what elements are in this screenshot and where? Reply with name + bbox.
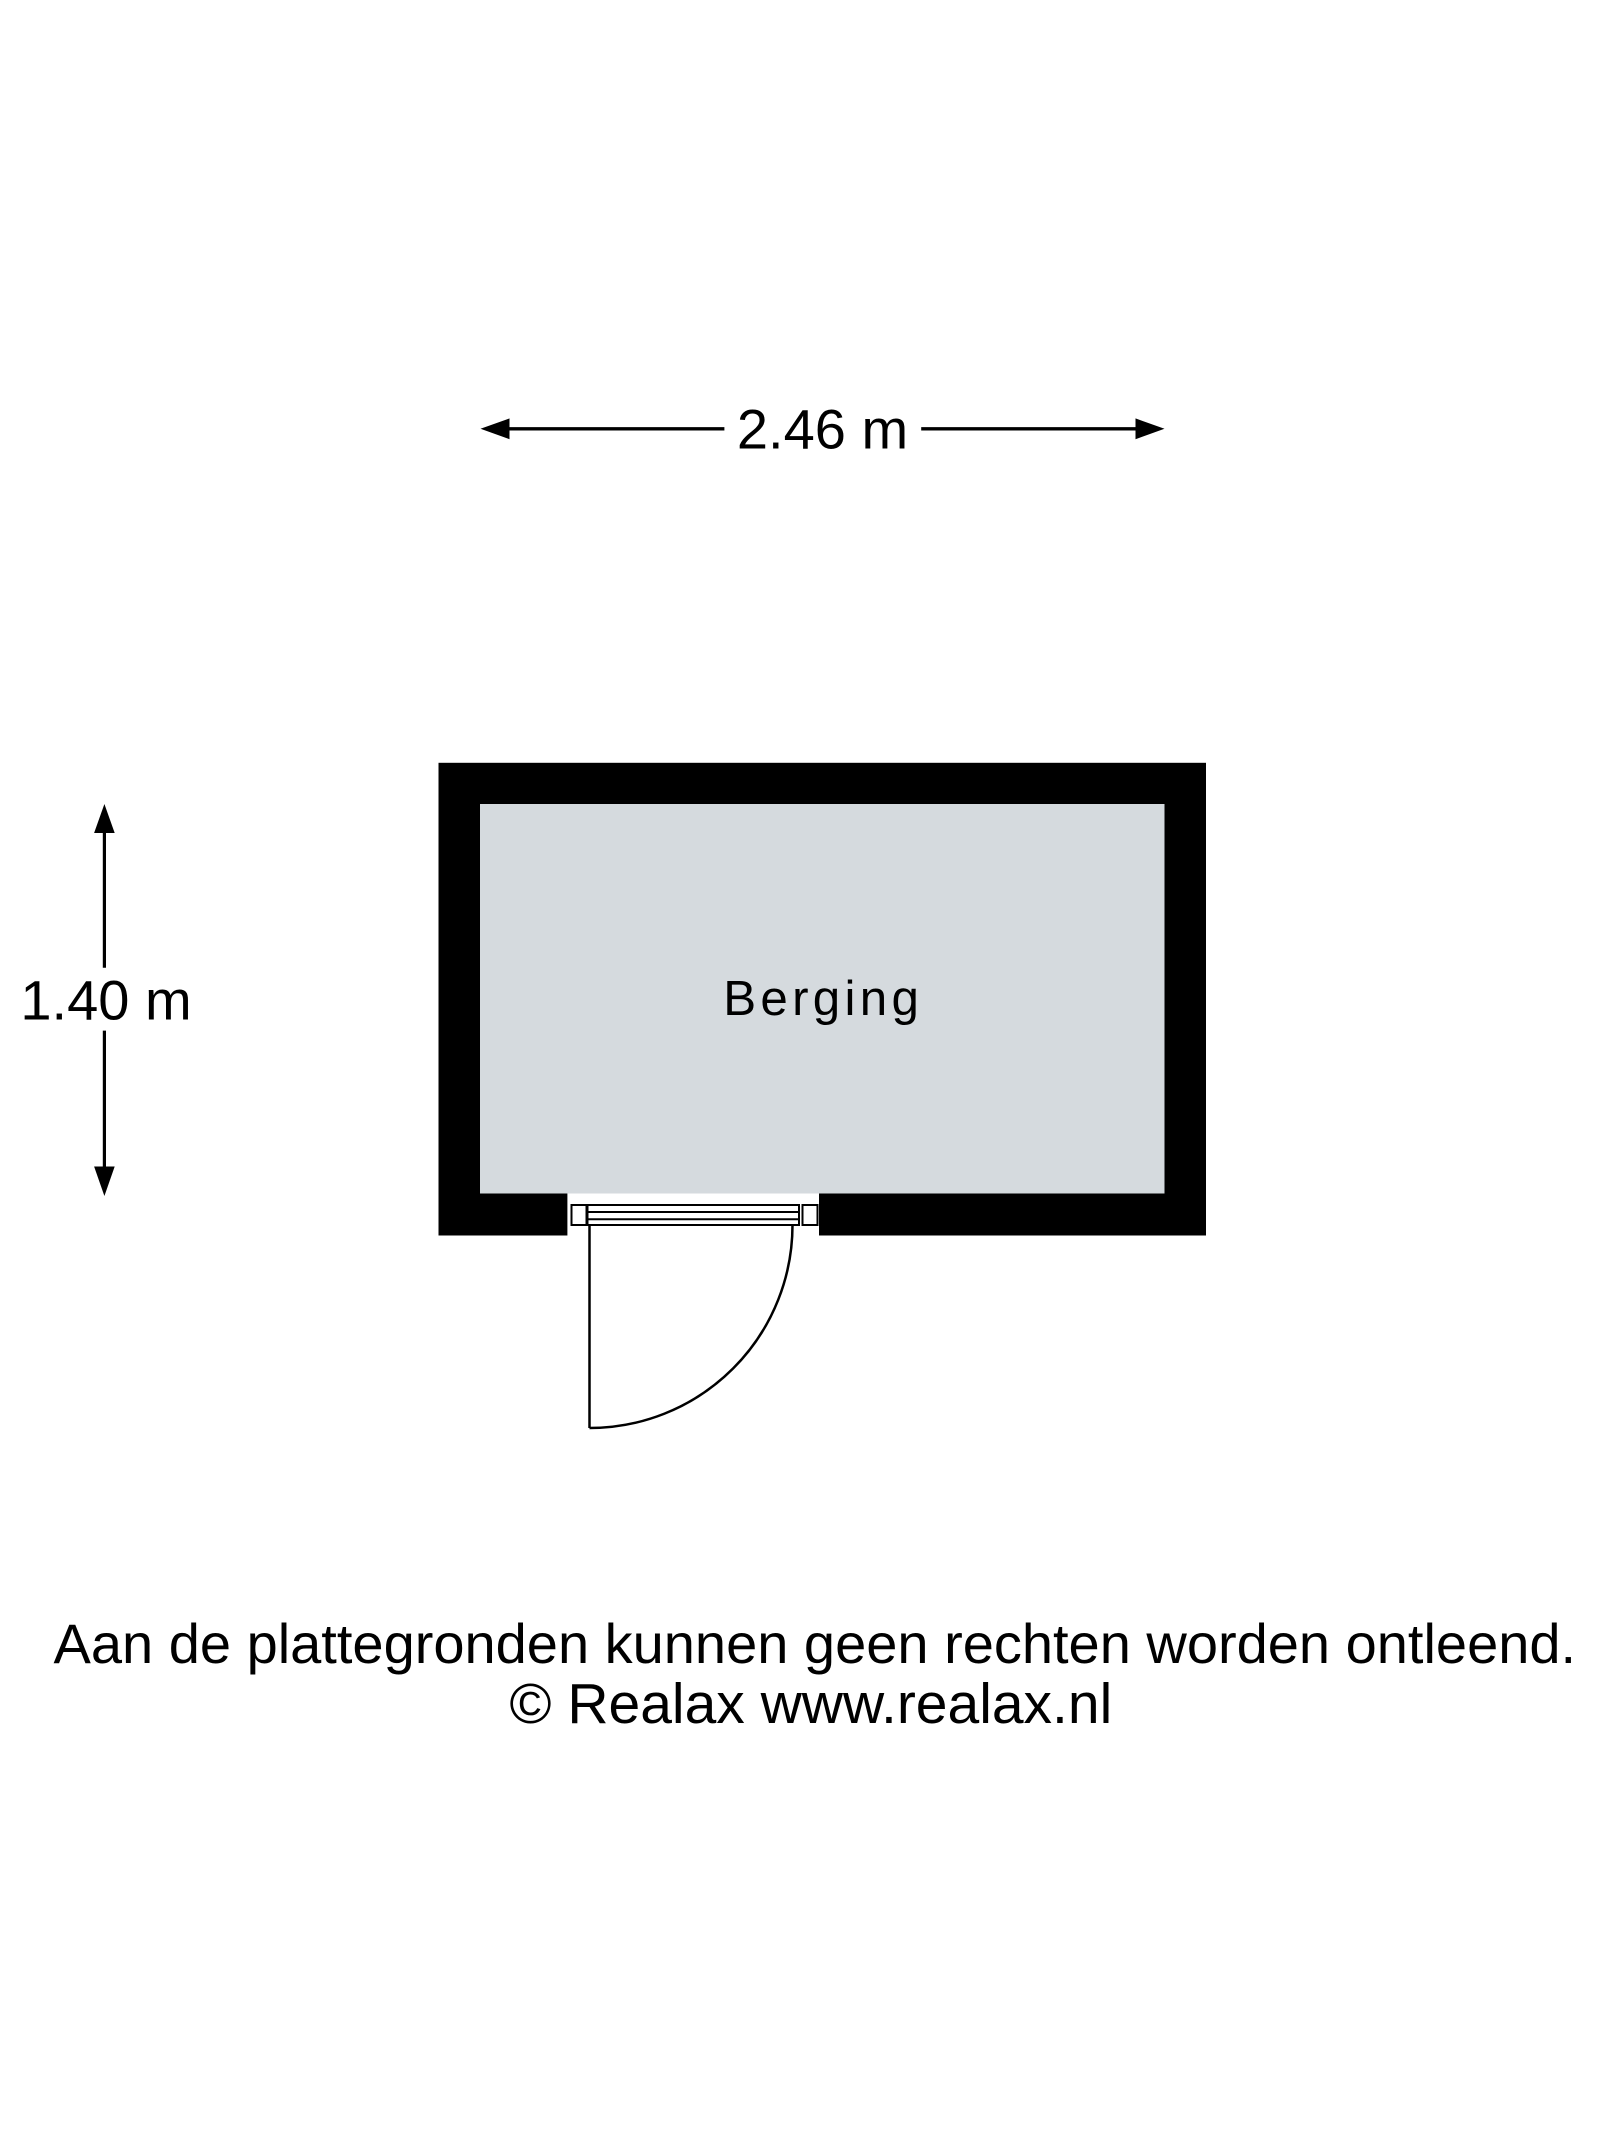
svg-text:1.40 m: 1.40 m bbox=[20, 968, 191, 1031]
svg-text:© Realax www.realax.nl: © Realax www.realax.nl bbox=[510, 1672, 1113, 1736]
svg-text:Berging: Berging bbox=[723, 971, 923, 1026]
svg-text:2.46 m: 2.46 m bbox=[737, 397, 908, 460]
svg-text:Aan de plattegronden kunnen ge: Aan de plattegronden kunnen geen rechten… bbox=[54, 1612, 1577, 1675]
